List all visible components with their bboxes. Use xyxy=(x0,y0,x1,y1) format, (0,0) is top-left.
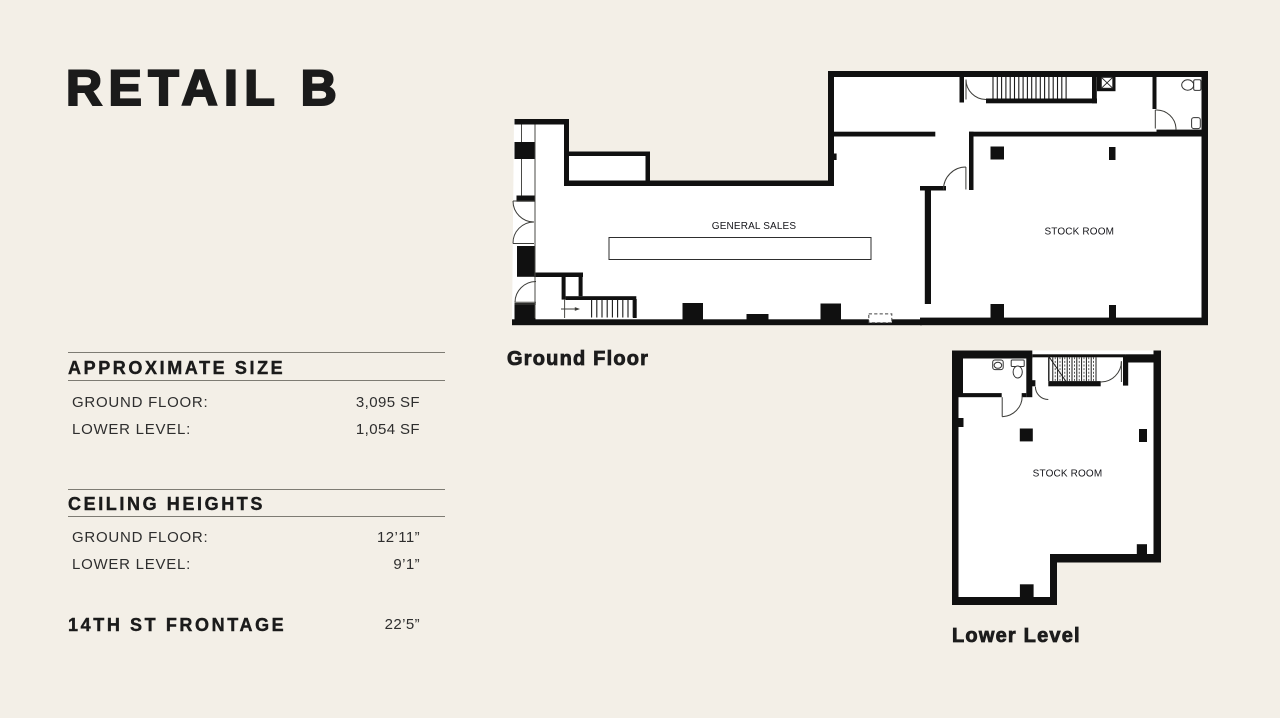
svg-text:GENERAL SALES: GENERAL SALES xyxy=(712,221,797,232)
svg-text:STOCK ROOM: STOCK ROOM xyxy=(1044,227,1114,238)
svg-text:STOCK ROOM: STOCK ROOM xyxy=(1033,468,1103,479)
